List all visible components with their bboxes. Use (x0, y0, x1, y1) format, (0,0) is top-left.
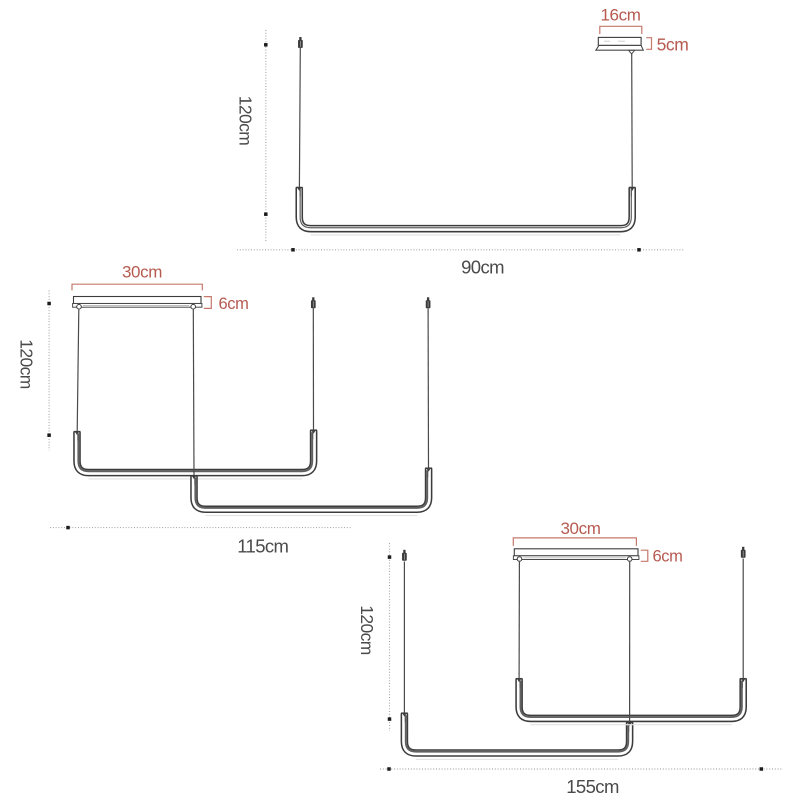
svg-text:6cm: 6cm (653, 548, 683, 566)
svg-text:120cm: 120cm (357, 605, 377, 655)
svg-text:6cm: 6cm (219, 295, 249, 313)
svg-text:155cm: 155cm (566, 776, 619, 797)
svg-text:120cm: 120cm (235, 96, 255, 146)
svg-text:30cm: 30cm (122, 262, 162, 281)
svg-text:120cm: 120cm (16, 339, 36, 389)
svg-text:90cm: 90cm (461, 257, 504, 278)
svg-text:30cm: 30cm (561, 519, 601, 538)
svg-text:16cm: 16cm (601, 5, 641, 24)
svg-text:5cm: 5cm (657, 35, 689, 55)
svg-text:115cm: 115cm (237, 536, 288, 557)
